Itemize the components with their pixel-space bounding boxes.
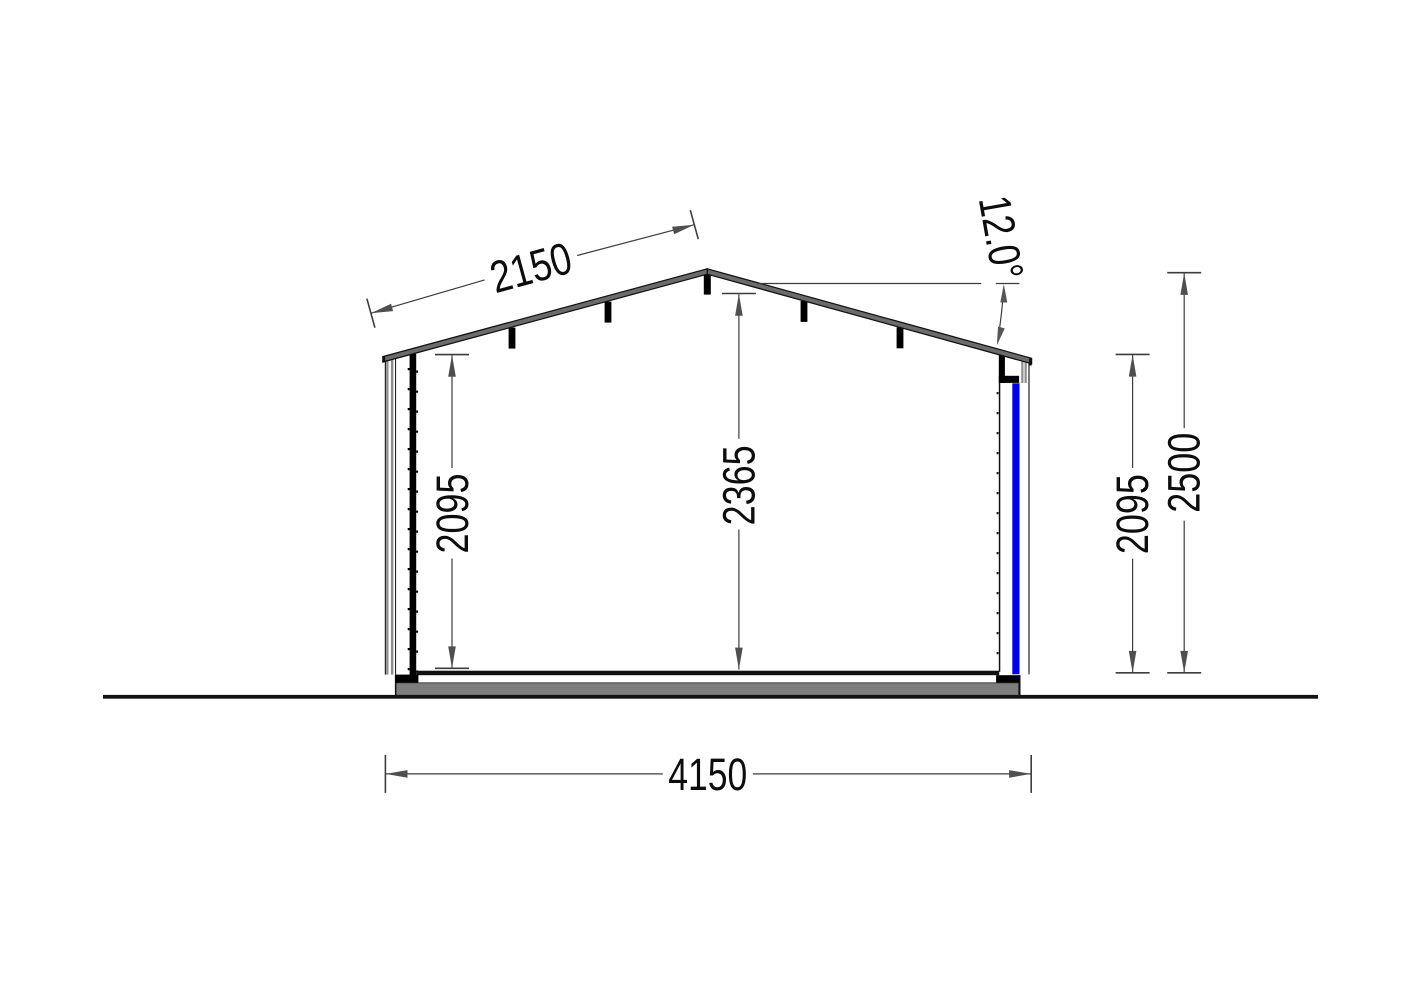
- svg-text:4150: 4150: [668, 749, 747, 800]
- svg-text:2095: 2095: [427, 474, 478, 554]
- svg-text:2365: 2365: [713, 445, 764, 525]
- svg-text:2500: 2500: [1158, 433, 1209, 513]
- svg-text:2095: 2095: [1107, 474, 1158, 554]
